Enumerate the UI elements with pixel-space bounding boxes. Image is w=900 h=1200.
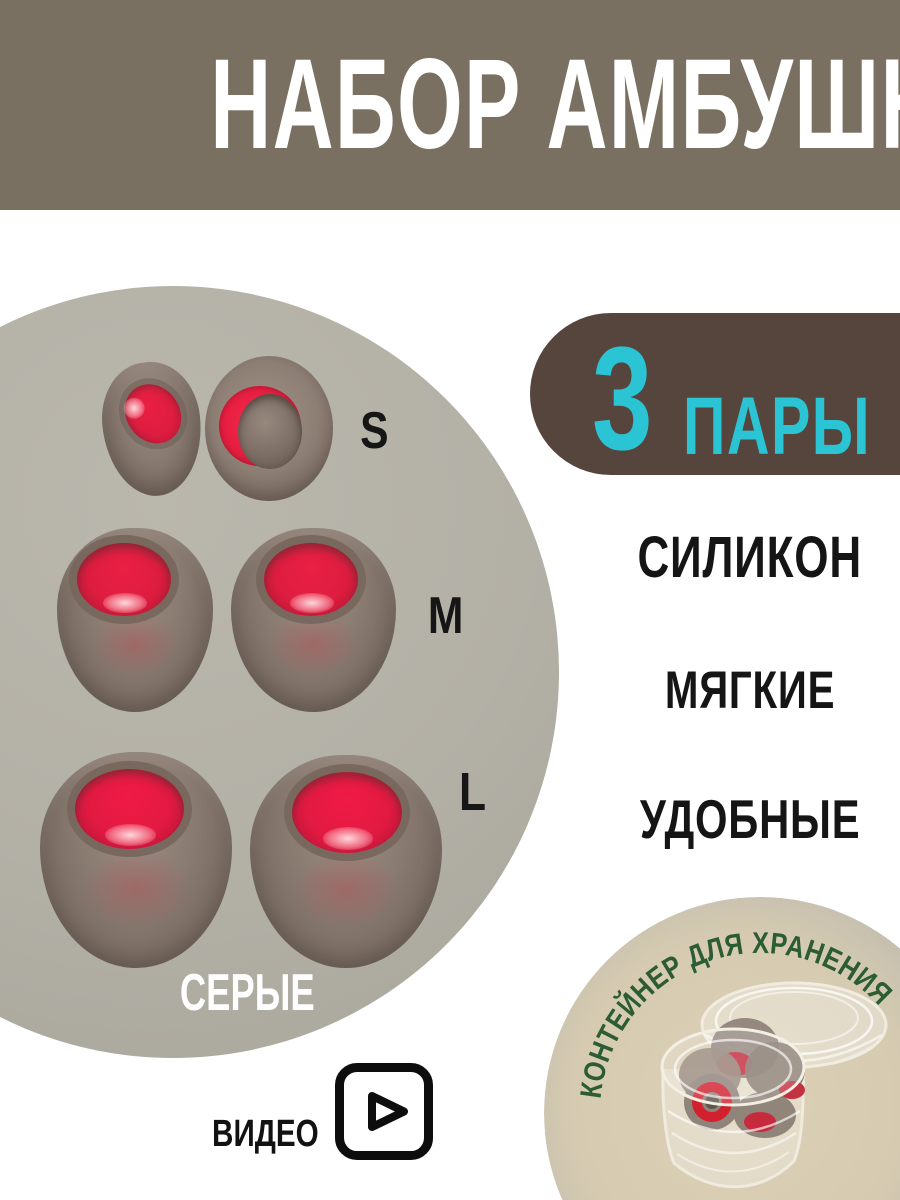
storage-photo-circle: КОНТЕЙНЕР ДЛЯ ХРАНЕНИЯ (544, 897, 900, 1200)
storage-container-illustration: КОНТЕЙНЕР ДЛЯ ХРАНЕНИЯ (544, 897, 900, 1200)
eartip-m-right (231, 528, 396, 712)
eartip-hole (238, 394, 302, 469)
pairs-badge: 3 ПАРЫ (530, 313, 900, 475)
size-label-m: M (411, 590, 481, 642)
product-card: НАБОР АМБУШЮР S M (0, 0, 900, 1200)
feature-silicone: СИЛИКОН (600, 529, 900, 587)
eartip-translucent-glow (86, 851, 186, 924)
top-banner: НАБОР АМБУШЮР (0, 0, 900, 210)
video-play-button[interactable] (335, 1063, 433, 1160)
eartip-opening (264, 543, 358, 617)
color-label: СЕРЫЕ (151, 967, 301, 1019)
size-label-s: S (339, 405, 409, 457)
pairs-label: ПАРЫ (683, 386, 871, 468)
eartip-translucent-glow (296, 853, 396, 925)
feature-comfortable: УДОБНЫЕ (600, 792, 900, 847)
container-jar (662, 1018, 805, 1187)
feature-soft: МЯГКИЕ (600, 664, 900, 717)
pairs-count: 3 (592, 326, 653, 473)
video-label: ВИДЕО (190, 1115, 340, 1153)
eartip-translucent-glow (271, 613, 357, 676)
eartip-s-left (96, 357, 207, 501)
size-label-l: L (437, 765, 507, 819)
eartip-opening (75, 769, 184, 849)
eartip-m-left (57, 528, 213, 712)
eartip-s-right (205, 356, 333, 501)
page-title-text: НАБОР АМБУШЮР (210, 41, 900, 169)
eartip-opening (77, 543, 171, 617)
play-icon (344, 1072, 424, 1151)
page-title: НАБОР АМБУШЮР (0, 41, 900, 169)
eartip-l-right (250, 755, 442, 968)
eartip-translucent-glow (94, 613, 175, 676)
eartip-opening (292, 772, 401, 853)
eartip-l-left (40, 752, 232, 968)
